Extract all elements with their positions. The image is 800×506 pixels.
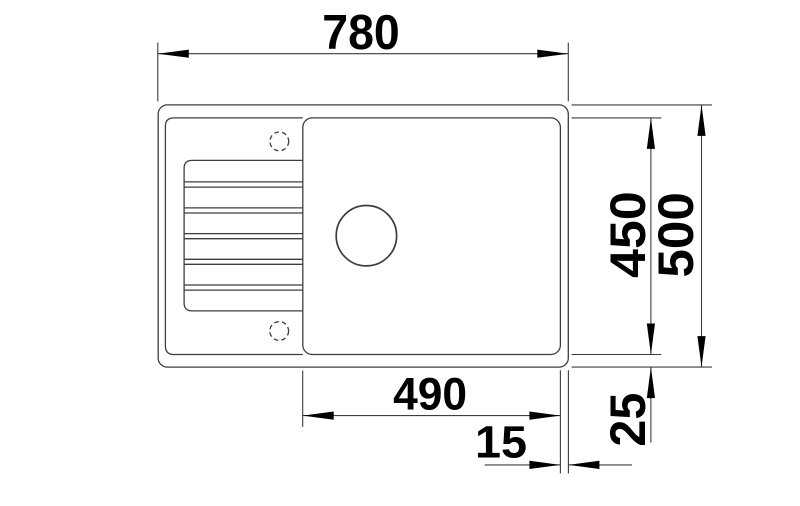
svg-text:25: 25 (600, 393, 656, 447)
svg-text:490: 490 (393, 369, 467, 420)
svg-text:15: 15 (475, 416, 527, 467)
svg-text:780: 780 (322, 5, 400, 60)
svg-text:500: 500 (648, 192, 704, 278)
